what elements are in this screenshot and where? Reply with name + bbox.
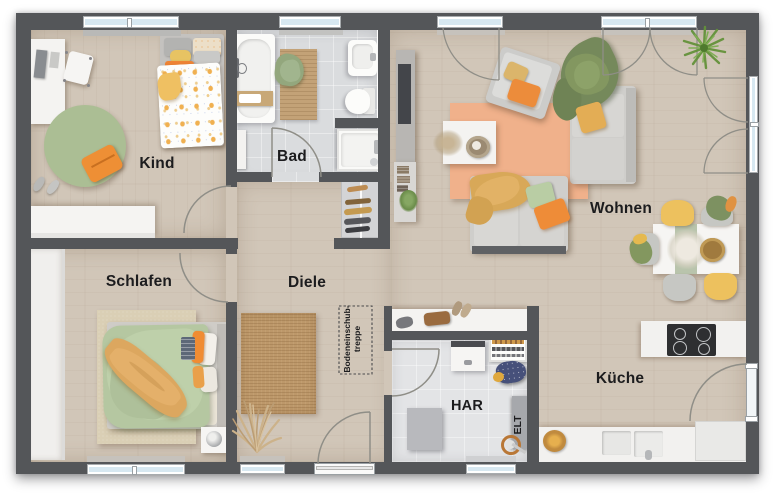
svg-text:Bodeneinschub-: Bodeneinschub- — [342, 305, 352, 372]
svg-text:ELT: ELT — [512, 415, 524, 435]
svg-text:treppe: treppe — [352, 326, 362, 352]
